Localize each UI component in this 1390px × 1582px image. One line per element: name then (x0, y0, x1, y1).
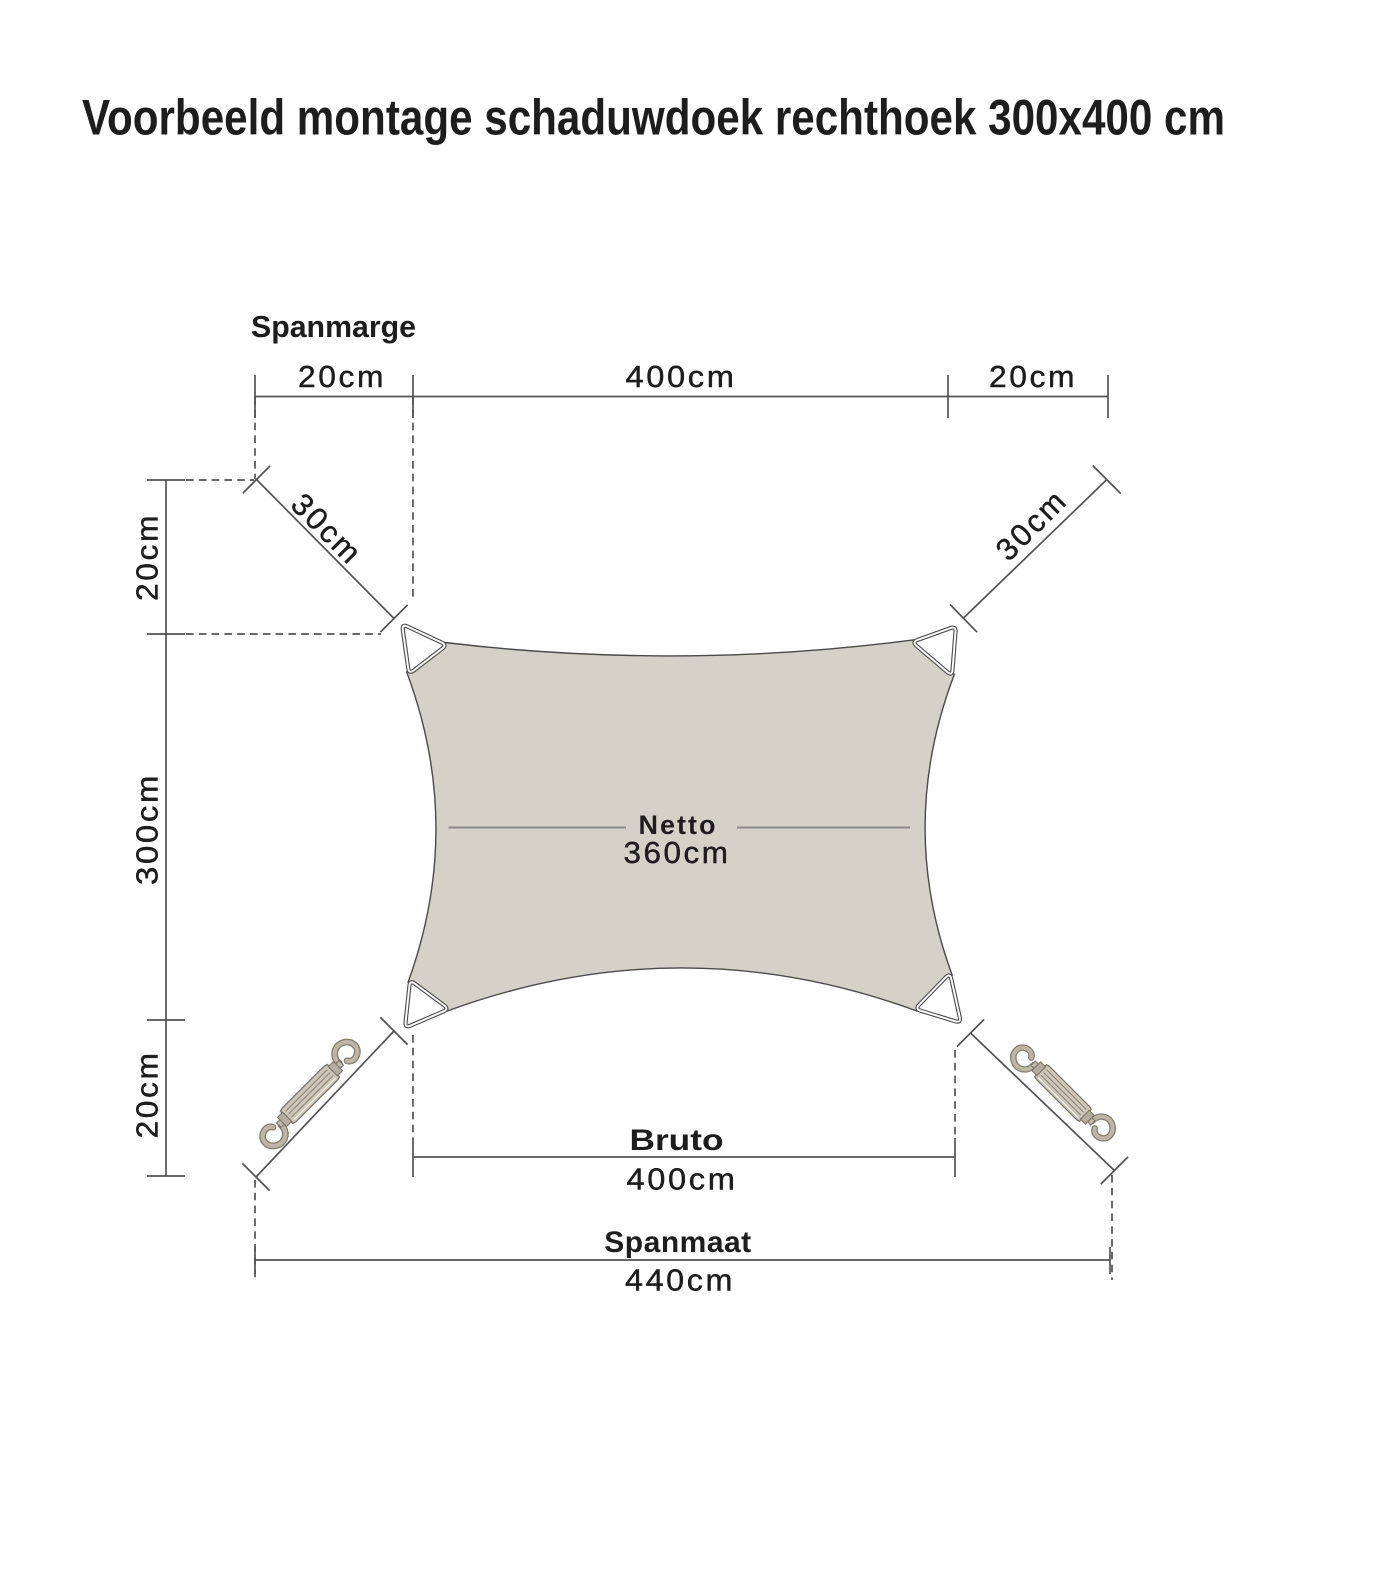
svg-text:Bruto: Bruto (630, 1124, 724, 1157)
svg-text:360cm: 360cm (624, 835, 731, 870)
svg-text:440cm: 440cm (625, 1263, 735, 1298)
svg-text:300cm: 300cm (130, 773, 165, 885)
svg-text:20cm: 20cm (298, 359, 386, 394)
svg-text:400cm: 400cm (627, 1162, 738, 1197)
svg-text:20cm: 20cm (130, 1051, 165, 1139)
svg-text:20cm: 20cm (989, 359, 1077, 394)
svg-text:400cm: 400cm (626, 359, 737, 394)
svg-text:Spanmarge: Spanmarge (251, 309, 416, 344)
svg-text:20cm: 20cm (130, 513, 165, 601)
svg-text:Spanmaat: Spanmaat (604, 1226, 751, 1259)
svg-text:Voorbeeld montage schaduwdoek: Voorbeeld montage schaduwdoek rechthoek … (82, 90, 1225, 146)
